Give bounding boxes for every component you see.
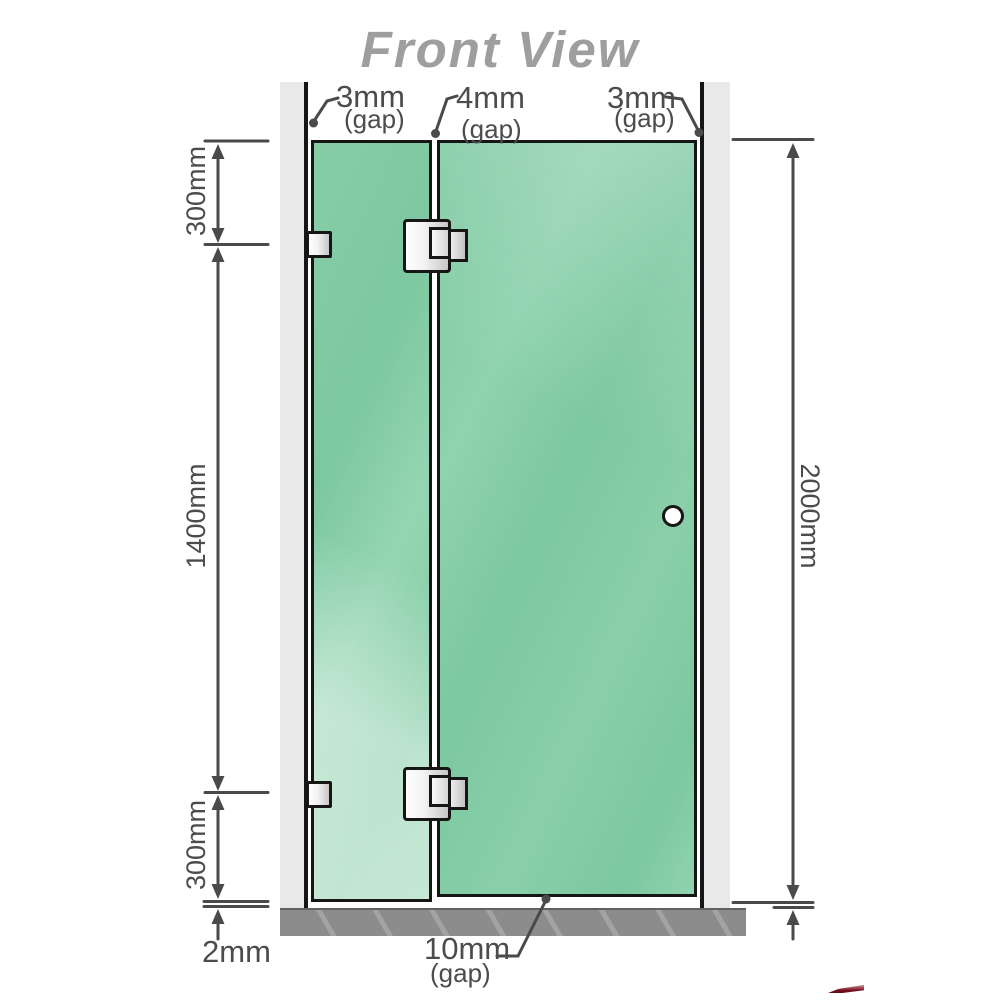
right-wall <box>700 82 730 908</box>
page-title: Front View <box>0 20 1000 78</box>
dim-label-left-middle: 1400mm <box>183 436 211 596</box>
dim-label-floor-gap: 2mm <box>202 936 271 967</box>
hinge-bottom-tab-icon <box>448 777 468 810</box>
floor-slab <box>280 908 746 936</box>
dim-label-door-bottom-unit: (gap) <box>430 960 491 986</box>
hinge-top-knuckle-icon <box>429 227 451 259</box>
dim-label-left-top: 300mm <box>183 111 211 271</box>
dim-label-gap-top-left-unit: (gap) <box>344 106 405 132</box>
front-view-diagram: Front View <box>0 0 1000 1000</box>
wall-bracket-top-icon <box>306 231 332 258</box>
dim-label-gap-top-middle: 4mm <box>456 82 525 113</box>
door-knob-icon <box>662 505 684 527</box>
watermark-logo-fragment <box>828 984 864 993</box>
wall-bracket-bottom-icon <box>306 781 332 808</box>
dim-label-gap-top-right-unit: (gap) <box>614 105 675 131</box>
dim-label-gap-top-middle-unit: (gap) <box>461 116 522 142</box>
hinge-bottom-knuckle-icon <box>429 775 451 807</box>
hinge-top-tab-icon <box>448 229 468 262</box>
dim-label-left-bottom: 300mm <box>183 765 211 925</box>
left-wall <box>280 82 308 908</box>
dim-label-total-height: 2000mm <box>795 436 823 596</box>
left-dimension-chain <box>204 141 268 939</box>
door-glass-panel <box>437 140 697 897</box>
